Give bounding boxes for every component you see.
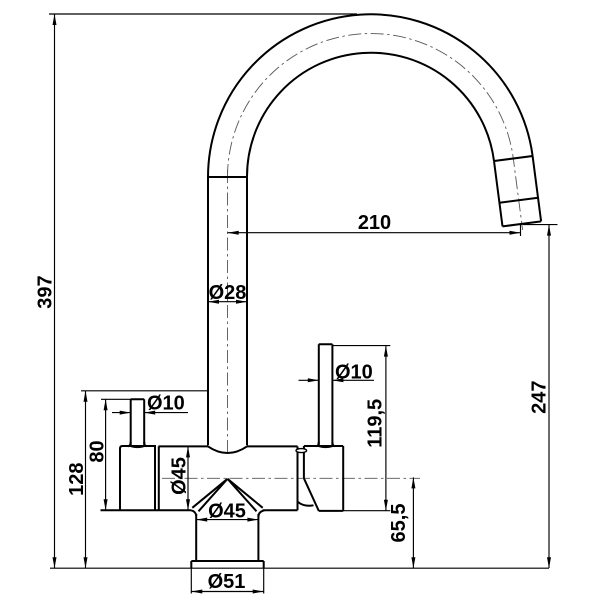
svg-text:80: 80 [87,440,109,462]
svg-text:119,5: 119,5 [365,399,387,448]
svg-text:Ø10: Ø10 [335,361,373,383]
svg-text:65,5: 65,5 [388,504,410,543]
svg-text:397: 397 [35,275,57,308]
svg-text:128: 128 [66,463,88,496]
svg-text:Ø10: Ø10 [147,392,185,414]
svg-text:Ø45: Ø45 [208,501,246,523]
svg-text:247: 247 [529,381,551,414]
svg-text:Ø28: Ø28 [209,282,247,304]
svg-text:Ø45: Ø45 [169,457,191,495]
svg-text:Ø51: Ø51 [208,571,246,593]
svg-text:210: 210 [358,212,391,234]
